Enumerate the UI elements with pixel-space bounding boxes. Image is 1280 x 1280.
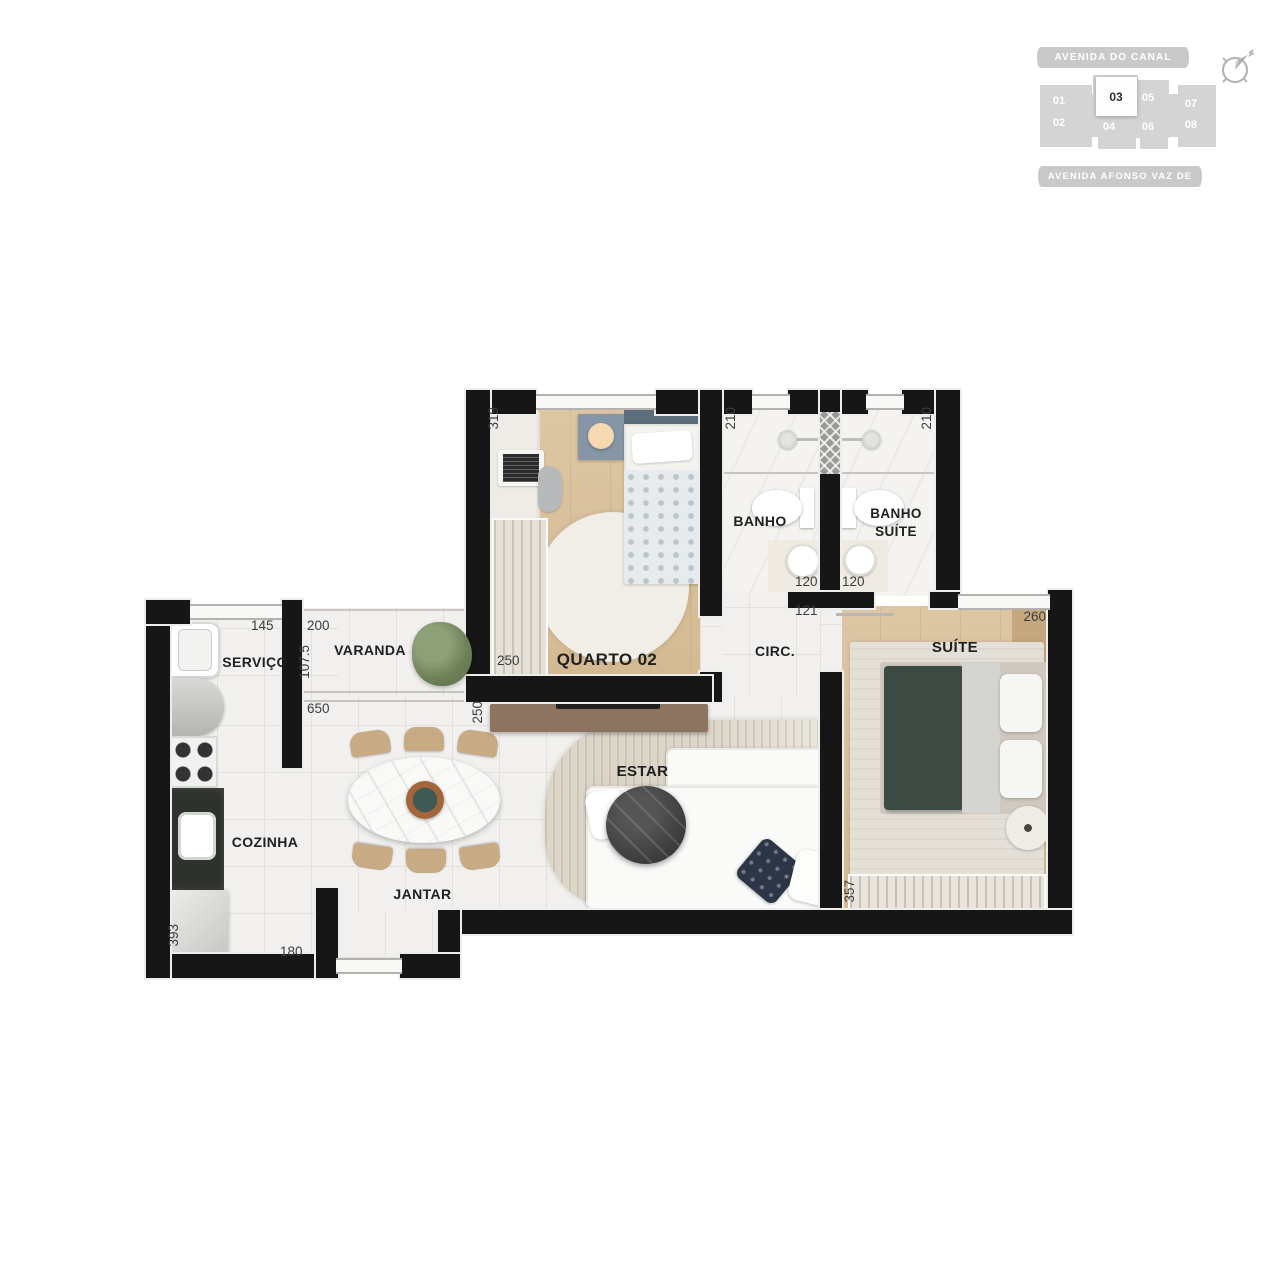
dim-quarto02-closet: 250 [497, 653, 520, 668]
unit-07: 07 [1178, 98, 1204, 110]
floor-plan-page: AVENIDA DO CANAL 01 02 03 04 05 06 [0, 0, 1280, 1280]
room-label-circ: CIRC. [735, 643, 815, 659]
dim-banho-width: 120 [795, 574, 818, 589]
dim-circ-width: 121 [795, 603, 818, 618]
street-banner-bottom: AVENIDA AFONSO VAZ DE MELO [1038, 166, 1202, 187]
room-label-varanda: VARANDA [325, 642, 415, 658]
wall-servico-varanda [282, 600, 302, 768]
wall-cozinha-step [316, 888, 338, 978]
room-label-servico: SERVIÇO [210, 654, 300, 670]
wall-banho-suite-bottom [930, 592, 960, 608]
dining-chair-2 [404, 727, 444, 751]
duct-shaft-hatch [820, 412, 840, 474]
shower-head-banho-suite-icon [862, 430, 881, 449]
window-banho-suite [866, 394, 904, 410]
dim-entry-width: 180 [280, 944, 303, 959]
unit-05: 05 [1135, 92, 1161, 104]
room-label-jantar: JANTAR [385, 886, 460, 902]
wardrobe-suite [848, 874, 1046, 914]
doorway-quarto02 [700, 614, 722, 674]
dim-suite-width: 260 [1012, 609, 1046, 624]
bed-suite-blanket [884, 666, 964, 810]
wall-banho-suite-right [936, 390, 960, 608]
room-label-suite: SUÍTE [900, 639, 1010, 656]
street-banner-top: AVENIDA DO CANAL [1037, 47, 1189, 68]
wall-right-outer [1048, 590, 1072, 934]
window-entry [336, 958, 402, 974]
wall-servico-top-left [146, 600, 190, 624]
dim-servico-width: 145 [251, 618, 274, 633]
unit-03: 03 [1100, 90, 1132, 104]
wall-entry-right [400, 954, 460, 978]
dim-suite-depth: 357 [842, 880, 857, 903]
room-label-quarto02: QUARTO 02 [537, 650, 677, 670]
dim-banho-suite-width: 120 [842, 574, 865, 589]
laundry-tub-basin [178, 629, 212, 671]
locator-map: AVENIDA DO CANAL 01 02 03 04 05 06 [0, 0, 1280, 220]
dim-banho-suite-depth: 210 [919, 407, 934, 430]
plant-suite-icon [1006, 806, 1050, 850]
dim-banho-depth: 210 [723, 407, 738, 430]
dim-living-width: 650 [307, 701, 330, 716]
street-bottom-label: AVENIDA AFONSO VAZ DE MELO [1048, 171, 1193, 203]
dim-cozinha-depth: 393 [166, 924, 181, 947]
kitchen-sink-icon [178, 812, 216, 860]
dim-quarto02-depth: 319 [486, 407, 501, 430]
room-label-estar: ESTAR [605, 763, 680, 780]
window-banho [752, 394, 790, 410]
unit-02: 02 [1046, 117, 1072, 129]
bed-suite-sheet [962, 663, 1000, 813]
toilet-tank-banho [800, 488, 814, 528]
room-label-banho-suite: BANHO SUÍTE [856, 505, 936, 541]
sink-banho-icon [786, 544, 820, 578]
bed-quarto02-pillow [631, 430, 693, 464]
room-label-cozinha: COZINHA [220, 834, 310, 850]
dim-quarto02-width: 250 [470, 701, 485, 724]
dim-varanda-depth: 107.5 [297, 645, 312, 679]
lamp-icon [588, 423, 614, 449]
stove-icon [170, 736, 218, 788]
coffee-table-icon [606, 786, 686, 864]
street-top-label: AVENIDA DO CANAL [1054, 52, 1171, 63]
dining-chair-5 [406, 849, 446, 873]
compass-northeast-icon [1214, 45, 1258, 89]
wall-left-outer [146, 600, 170, 978]
wall-quarto02-banho [700, 390, 722, 616]
unit-08: 08 [1178, 119, 1204, 131]
pillow-suite-1 [1000, 674, 1042, 732]
dim-varanda-width: 200 [307, 618, 330, 633]
bed-quarto02-duvet [624, 470, 702, 584]
locator-building-right [1178, 85, 1216, 147]
desk-chair-quarto02 [538, 466, 562, 512]
sink-banho-suite-icon [844, 544, 876, 576]
window-suite [958, 594, 1050, 610]
unit-01: 01 [1046, 95, 1072, 107]
wall-suite-left [820, 672, 842, 934]
doorway-suite [820, 608, 842, 672]
wall-quarto02-bottom [466, 676, 712, 702]
washer-icon [168, 678, 224, 736]
unit-04: 04 [1096, 121, 1122, 133]
wall-bottom-left [146, 954, 338, 978]
window-quarto02 [536, 394, 656, 410]
room-label-banho: BANHO [720, 513, 800, 529]
shower-glass-banho-suite [842, 472, 934, 474]
pillow-suite-2 [1000, 740, 1042, 798]
laptop-keyboard [503, 454, 539, 482]
shower-head-banho-icon [778, 430, 797, 449]
unit-06: 06 [1135, 121, 1161, 133]
door-swing-suite [836, 613, 894, 616]
plant-varanda-icon [412, 622, 472, 686]
varanda-edge-top [302, 609, 466, 611]
centerpiece-bowl-icon [406, 781, 444, 819]
wall-estar-bottom [448, 910, 1072, 934]
shower-glass-banho [724, 472, 818, 474]
